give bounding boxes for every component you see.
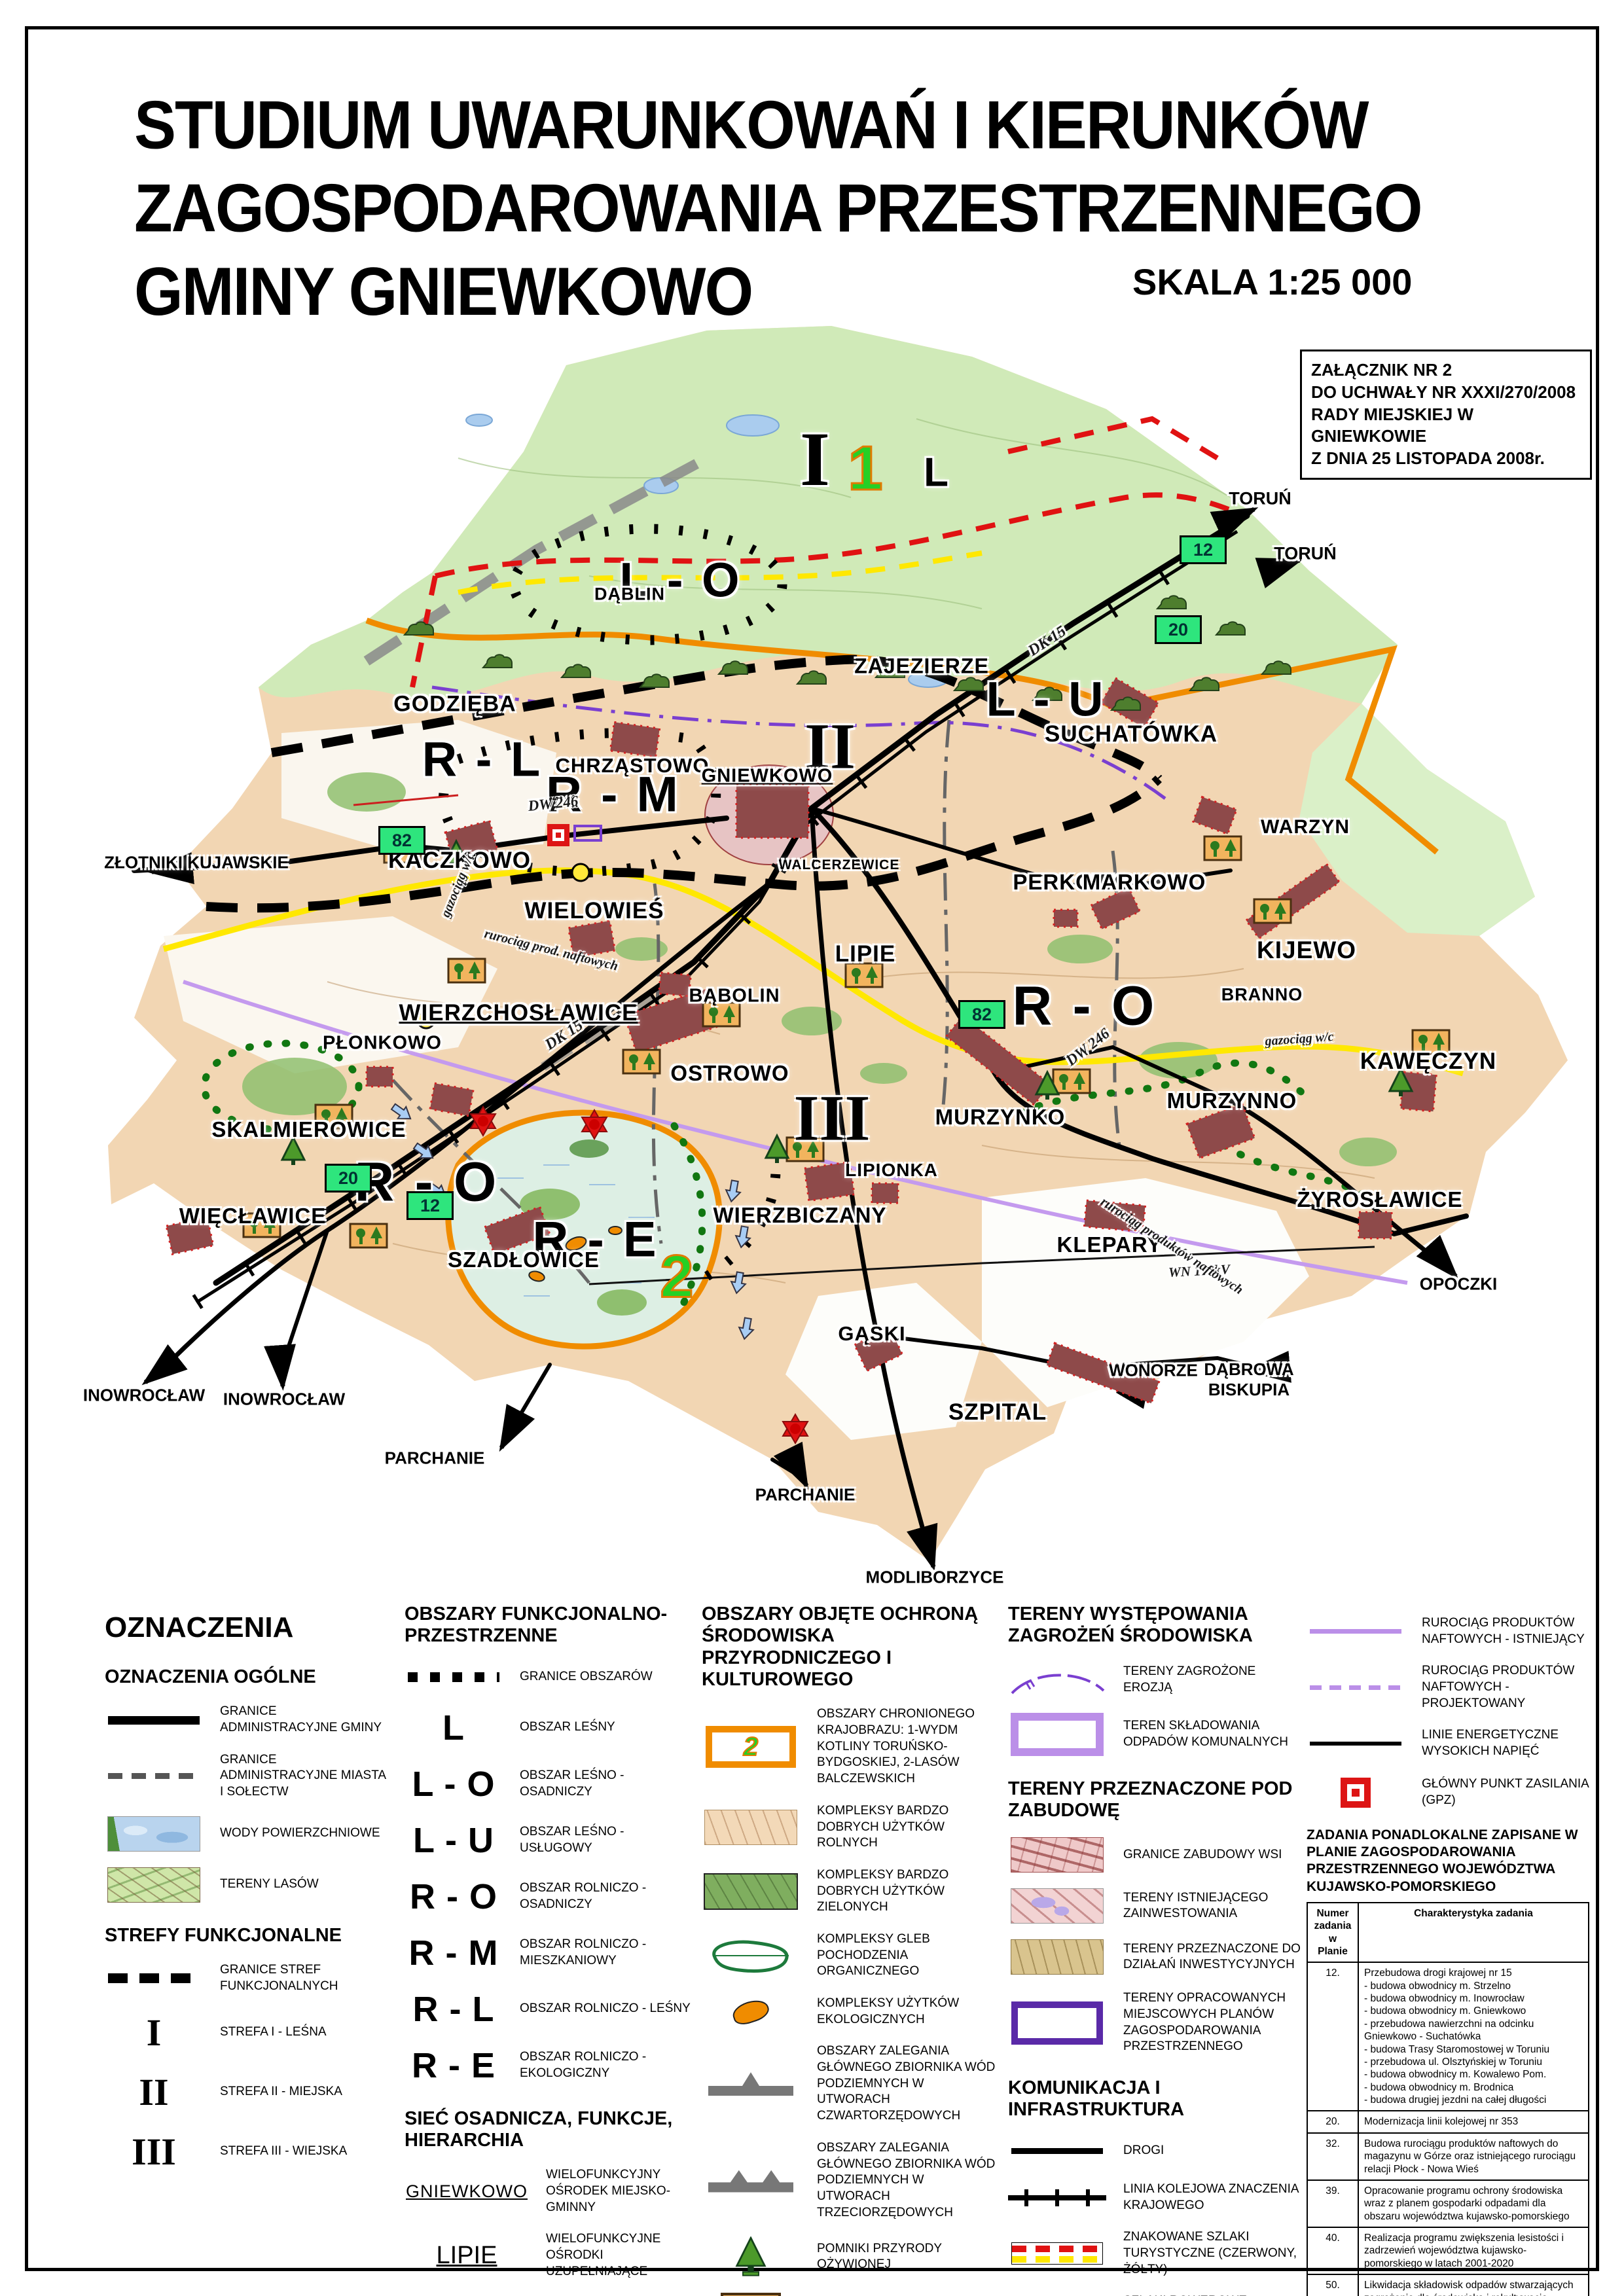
legend-heading-obszary: OBSZARY FUNKCJONALNO-PRZESTRZENNE	[405, 1604, 691, 1647]
legend-item: GRANICE ADMINISTRACYJNE GMINY	[105, 1704, 386, 1736]
legend-item: ZABYTKOWE PARKI WIEJSKIE I PODWORSKIE	[702, 2293, 998, 2296]
legend-swatch-trail	[1008, 2239, 1106, 2268]
legend-swatch-dash-black	[105, 1964, 203, 1993]
legend-item: DROGI	[1008, 2137, 1301, 2166]
legend-item-label: DROGI	[1123, 2143, 1301, 2159]
legend-item-label: WIELOFUNKCYJNY OŚRODEK MIEJSKO-GMINNY	[546, 2167, 691, 2215]
legend-swatch-img-tan	[1008, 1939, 1106, 1975]
legend-column-infrastruktura: RUROCIĄG PRODUKTÓW NAFTOWYCH - ISTNIEJĄC…	[1307, 1600, 1589, 2296]
legend-col2-items: GRANICE OBSZARÓWLOBSZAR LEŚNYL - OOBSZAR…	[405, 1663, 691, 2086]
protected-landscape-number: 2	[744, 1732, 758, 1762]
legend-zone-code: R - O	[405, 1876, 503, 1917]
legend-item: L - UOBSZAR LEŚNO - USŁUGOWY	[405, 1820, 691, 1861]
legend-swatch-purple-solid	[1307, 1617, 1405, 1646]
legend-swatch-gpz	[1307, 1776, 1405, 1810]
legend-item-label: WODY POWIERZCHNIOWE	[220, 1825, 386, 1842]
legend-swatch-eco-blob	[702, 1998, 800, 2026]
legend-item: IIISTREFA III - WIEJSKA	[105, 2130, 386, 2174]
legend-item-label: GRANICE ADMINISTRACYJNE GMINY	[220, 1704, 386, 1736]
zadania-row-number: 50.	[1307, 2274, 1358, 2296]
legend-zone-code: L - U	[405, 1820, 503, 1861]
zadania-row-text: Przebudowa drogi krajowej nr 15 - budowa…	[1358, 1962, 1589, 2111]
legend-item: IISTREFA II - MIEJSKA	[105, 2070, 386, 2114]
legend-item-label: RUROCIĄG PRODUKTÓW NAFTOWYCH - ISTNIEJĄC…	[1422, 1615, 1589, 1647]
zadania-row: 20.Modernizacja linii kolejowej nr 353	[1307, 2111, 1589, 2132]
zadania-row-number: 40.	[1307, 2227, 1358, 2274]
legend-item: RUROCIĄG PRODUKTÓW NAFTOWYCH - PROJEKTOW…	[1307, 1663, 1589, 1712]
legend-item: GRANICE ZABUDOWY WSI	[1008, 1837, 1301, 1873]
settlement-name: LIPIE	[437, 2242, 497, 2269]
legend-zone-code: R - M	[405, 1933, 503, 1973]
legend-col1-body: OZNACZENIA OGÓLNEGRANICE ADMINISTRACYJNE…	[105, 1666, 386, 2174]
legend-item-label: OBSZARY CHRONIONEGO KRAJOBRAZU: 1-WYDM K…	[817, 1706, 998, 1787]
legend-subheading: OZNACZENIA OGÓLNE	[105, 1666, 386, 1688]
legend-item: TERENY LASÓW	[105, 1867, 386, 1903]
legend-heading-ochrona: OBSZARY OBJĘTE OCHRONĄ ŚRODOWISKA PRZYRO…	[702, 1604, 998, 1691]
legend-item: WODY POWIERZCHNIOWE	[105, 1816, 386, 1852]
legend-item: R - OOBSZAR ROLNICZO - OSADNICZY	[405, 1876, 691, 1917]
legend-item: GRANICE STREF FUNKCJONALNYCH	[105, 1962, 386, 1994]
legend-item-label: STREFA III - WIEJSKA	[220, 2144, 386, 2160]
zadania-row-number: 12.	[1307, 1962, 1358, 2111]
zadania-table-grid: Numer zadania w PlanieCharakterystyka za…	[1307, 1902, 1589, 2296]
legend-item: TEREN SKŁADOWANIA ODPADÓW KOMUNALNYCH	[1008, 1713, 1301, 1756]
legend-item-label: OBSZAR ROLNICZO - MIESZKANIOWY	[520, 1937, 691, 1969]
legend-item-label: GRANICE ZABUDOWY WSI	[1123, 1847, 1301, 1863]
zadania-row: 50.Likwidacja składowisk odpadów stwarza…	[1307, 2274, 1589, 2296]
zadania-col-desc: Charakterystyka zadania	[1358, 1903, 1589, 1963]
legend-roman-numeral: III	[105, 2130, 203, 2174]
legend-col2-settlements: GNIEWKOWOWIELOFUNKCYJNY OŚRODEK MIEJSKO-…	[405, 2167, 691, 2296]
legend-subheading: TERENY PRZEZNACZONE POD ZABUDOWĘ	[1008, 1778, 1301, 1822]
legend-item-label: KOMPLEKSY GLEB POCHODZENIA ORGANICZNEGO	[817, 1931, 998, 1980]
legend-swatch-frame-orange: 2	[702, 1726, 800, 1768]
legend-item-label: TEREN SKŁADOWANIA ODPADÓW KOMUNALNYCH	[1123, 1718, 1301, 1750]
legend-swatch-black-line	[1307, 1729, 1405, 1758]
legend-item-label: OBSZAR ROLNICZO - EKOLOGICZNY	[520, 2049, 691, 2081]
legend-item-label: OBSZAR LEŚNY	[520, 1719, 691, 1736]
legend-swatch-line-dash-gray	[105, 1762, 203, 1791]
annexe-box: ZAŁĄCZNIK NR 2 DO UCHWAŁY NR XXXI/270/20…	[1300, 350, 1592, 480]
legend-title: OZNACZENIA	[105, 1611, 386, 1644]
legend-item: ZNAKOWANE SZLAKI TURYSTYCZNE (CZERWONY, …	[1008, 2229, 1301, 2278]
legend-column-obszary: OBSZARY FUNKCJONALNO-PRZESTRZENNE GRANIC…	[405, 1600, 691, 2296]
legend-item: GRANICE OBSZARÓW	[405, 1663, 691, 1692]
legend-heading-siec: SIEĆ OSADNICZA, FUNKCJE, HIERARCHIA	[405, 2108, 691, 2152]
legend-roman-numeral: I	[105, 2011, 203, 2054]
legend-swatch-img-green	[702, 1873, 800, 1910]
legend-swatch-line-thick	[105, 1706, 203, 1734]
legend-item: R - LOBSZAR ROLNICZO - LEŚNY	[405, 1989, 691, 2030]
legend-zone-code: R - L	[405, 1989, 503, 2030]
legend-col5-items: RUROCIĄG PRODUKTÓW NAFTOWYCH - ISTNIEJĄC…	[1307, 1615, 1589, 1810]
legend-item: RUROCIĄG PRODUKTÓW NAFTOWYCH - ISTNIEJĄC…	[1307, 1615, 1589, 1647]
legend-item-label: TERENY ZAGROŻONE EROZJĄ	[1123, 1664, 1301, 1696]
legend-swatch-purple-arc	[1008, 1663, 1106, 1697]
legend-zone-code: L	[405, 1708, 503, 1748]
annexe-line2: DO UCHWAŁY NR XXXI/270/2008	[1311, 382, 1581, 404]
zadania-row-text: Realizacja programu zwiększenia lesistoś…	[1358, 2227, 1589, 2274]
legend-item: POMNIKI PRZYRODY OŻYWIONEJ	[702, 2236, 998, 2277]
zadania-row-text: Modernizacja linii kolejowej nr 353	[1358, 2111, 1589, 2132]
legend-item: KOMPLEKSY GLEB POCHODZENIA ORGANICZNEGO	[702, 1931, 998, 1980]
zadania-row-text: Likwidacja składowisk odpadów stwarzając…	[1358, 2274, 1589, 2296]
legend-item-label: SZLAKI ROWEROWE (PONADLOKALNY, LOKALNY)	[1123, 2293, 1301, 2296]
legend-item: R - MOBSZAR ROLNICZO - MIESZKANIOWY	[405, 1933, 691, 1973]
legend-swatch-img-agri	[702, 1810, 800, 1845]
zadania-row-number: 20.	[1307, 2111, 1358, 2132]
legend-swatch-img-forest	[105, 1867, 203, 1903]
legend-settlement-item: GNIEWKOWOWIELOFUNKCYJNY OŚRODEK MIEJSKO-…	[405, 2167, 691, 2215]
legend-zone-code: R - E	[405, 2045, 503, 2086]
zadania-row-number: 32.	[1307, 2133, 1358, 2180]
zadania-table: Numer zadania w PlanieCharakterystyka za…	[1307, 1902, 1589, 2296]
legend-item: R - EOBSZAR ROLNICZO - EKOLOGICZNY	[405, 2045, 691, 2086]
legend-swatch-purple-dash	[1307, 1673, 1405, 1702]
legend-item-label: TERENY LASÓW	[220, 1876, 386, 1893]
legend-swatch-tree	[702, 2236, 800, 2277]
legend-settlement-item: LIPIEWIELOFUNKCYJNE OŚRODKI UZUPEŁNIAJĄC…	[405, 2231, 691, 2280]
legend-subheading: KOMUNIKACJA I INFRASTRUKTURA	[1008, 2077, 1301, 2121]
legend-item-label: ZNAKOWANE SZLAKI TURYSTYCZNE (CZERWONY, …	[1123, 2229, 1301, 2278]
legend-column-zagrozenia: TERENY WYSTĘPOWANIA ZAGROŻEŃ ŚRODOWISKAT…	[1008, 1600, 1301, 2296]
legend-item: 2OBSZARY CHRONIONEGO KRAJOBRAZU: 1-WYDM …	[702, 1706, 998, 1787]
legend-item-label: KOMPLEKSY BARDZO DOBRYCH UŻYTKÓW ZIELONY…	[817, 1867, 998, 1916]
legend-item-label: GRANICE OBSZARÓW	[520, 1669, 691, 1685]
legend-item-label: OBSZAR ROLNICZO - OSADNICZY	[520, 1880, 691, 1912]
legend-swatch-img-pink2	[1008, 1888, 1106, 1924]
legend-swatch-park	[702, 2293, 800, 2296]
legend-item-label: GŁÓWNY PUNKT ZASILANIA (GPZ)	[1422, 1776, 1589, 1808]
legend-item: LINIE ENERGETYCZNE WYSOKICH NAPIĘĆ	[1307, 1727, 1589, 1759]
legend-item-label: TERENY OPRACOWANYCH MIEJSCOWYCH PLANÓW Z…	[1123, 1990, 1301, 2055]
legend-item: KOMPLEKSY UŻYTKÓW EKOLOGICZNYCH	[702, 1996, 998, 2028]
legend-item-label: WIELOFUNKCYJNE OŚRODKI UZUPEŁNIAJĄCE	[546, 2231, 691, 2280]
legend-item: ISTREFA I - LEŚNA	[105, 2011, 386, 2054]
zadania-row: 32.Budowa rurociągu produktów naftowych …	[1307, 2133, 1589, 2180]
legend-item: GŁÓWNY PUNKT ZASILANIA (GPZ)	[1307, 1776, 1589, 1810]
legend-item-label: LINIE ENERGETYCZNE WYSOKICH NAPIĘĆ	[1422, 1727, 1589, 1759]
legend-item: LOBSZAR LEŚNY	[405, 1708, 691, 1748]
annexe-line4: Z DNIA 25 LISTOPADA 2008r.	[1311, 448, 1581, 470]
legend-item: GRANICE ADMINISTRACYJNE MIASTA I SOŁECTW	[105, 1752, 386, 1801]
zadania-row: 40.Realizacja programu zwiększenia lesis…	[1307, 2227, 1589, 2274]
legend-item-label: OBSZAR LEŚNO - OSADNICZY	[520, 1768, 691, 1800]
zadania-row-text: Budowa rurociągu produktów naftowych do …	[1358, 2133, 1589, 2180]
zadania-row: 12.Przebudowa drogi krajowej nr 15 - bud…	[1307, 1962, 1589, 2111]
legend-item: SZLAKI ROWEROWE (PONADLOKALNY, LOKALNY)	[1008, 2293, 1301, 2296]
legend-item-label: GRANICE STREF FUNKCJONALNYCH	[220, 1962, 386, 1994]
legend-item-label: RUROCIĄG PRODUKTÓW NAFTOWYCH - PROJEKTOW…	[1422, 1663, 1589, 1712]
legend-zone-code: L - O	[405, 1764, 503, 1804]
legend-item-label: STREFA II - MIEJSKA	[220, 2084, 386, 2100]
zadania-row: 39.Opracowanie programu ochrony środowis…	[1307, 2180, 1589, 2227]
legend-swatch-frame-violet	[1008, 1713, 1106, 1756]
annexe-line3: RADY MIEJSKIEJ W GNIEWKOWIE	[1311, 404, 1581, 448]
zadania-col-num: Numer zadania w Planie	[1307, 1903, 1358, 1963]
zadania-row-text: Opracowanie programu ochrony środowiska …	[1358, 2180, 1589, 2227]
zadania-heading: ZADANIA PONADLOKALNE ZAPISANE W PLANIE Z…	[1307, 1827, 1589, 1895]
legend-item-label: KOMPLEKSY BARDZO DOBRYCH UŻYTKÓW ROLNYCH	[817, 1803, 998, 1852]
legend-swatch-dots-black	[405, 1663, 503, 1692]
legend-item-label: TERENY PRZEZNACZONE DO DZIAŁAŃ INWESTYCY…	[1123, 1941, 1301, 1973]
legend-item-label: KOMPLEKSY UŻYTKÓW EKOLOGICZNYCH	[817, 1996, 998, 2028]
legend-item: L - OOBSZAR LEŚNO - OSADNICZY	[405, 1764, 691, 1804]
legend-swatch-img-water	[105, 1816, 203, 1852]
legend-swatch-aquifer2	[702, 2166, 800, 2195]
legend-item-label: OBSZAR ROLNICZO - LEŚNY	[520, 2001, 691, 2017]
legend-swatch-rail	[1008, 2183, 1106, 2212]
annexe-line1: ZAŁĄCZNIK NR 2	[1311, 359, 1581, 382]
legend-roman-numeral: II	[105, 2070, 203, 2114]
legend-item-label: TERENY ISTNIEJĄCEGO ZAINWESTOWANIA	[1123, 1890, 1301, 1922]
legend-item: OBSZARY ZALEGANIA GŁÓWNEGO ZBIORNIKA WÓD…	[702, 2140, 998, 2221]
legend-item: OBSZARY ZALEGANIA GŁÓWNEGO ZBIORNIKA WÓD…	[702, 2043, 998, 2124]
legend-item-label: POMNIKI PRZYRODY OŻYWIONEJ	[817, 2241, 998, 2273]
legend-item: TERENY PRZEZNACZONE DO DZIAŁAŃ INWESTYCY…	[1008, 1939, 1301, 1975]
legend-item-label: OBSZARY ZALEGANIA GŁÓWNEGO ZBIORNIKA WÓD…	[817, 2043, 998, 2124]
zadania-row-number: 39.	[1307, 2180, 1358, 2227]
legend-item: LINIA KOLEJOWA ZNACZENIA KRAJOWEGO	[1008, 2181, 1301, 2214]
legend-item: TERENY OPRACOWANYCH MIEJSCOWYCH PLANÓW Z…	[1008, 1990, 1301, 2055]
legend-item: TERENY ZAGROŻONE EROZJĄ	[1008, 1663, 1301, 1697]
legend-item: KOMPLEKSY BARDZO DOBRYCH UŻYTKÓW ZIELONY…	[702, 1867, 998, 1916]
plan-sheet: STUDIUM UWARUNKOWAŃ I KIERUNKÓW ZAGOSPOD…	[0, 0, 1624, 2296]
settlement-name-sample: GNIEWKOWO	[405, 2181, 529, 2202]
settlement-name-sample: LIPIE	[405, 2242, 529, 2270]
legend-col3-items: 2OBSZARY CHRONIONEGO KRAJOBRAZU: 1-WYDM …	[702, 1706, 998, 2296]
settlement-name: GNIEWKOWO	[406, 2181, 528, 2201]
legend-swatch-road	[1008, 2137, 1106, 2166]
legend-item-label: LINIA KOLEJOWA ZNACZENIA KRAJOWEGO	[1123, 2181, 1301, 2214]
legend-column-oznaczenia: OZNACZENIA OZNACZENIA OGÓLNEGRANICE ADMI…	[105, 1600, 386, 2189]
legend-swatch-organic	[702, 1936, 800, 1975]
legend-subheading: STREFY FUNKCJONALNE	[105, 1925, 386, 1946]
legend-item-label: STREFA I - LEŚNA	[220, 2024, 386, 2041]
legend-col4-body: TERENY WYSTĘPOWANIA ZAGROŻEŃ ŚRODOWISKAT…	[1008, 1604, 1301, 2296]
legend-column-ochrona: OBSZARY OBJĘTE OCHRONĄ ŚRODOWISKA PRZYRO…	[702, 1600, 998, 2296]
legend-item: TERENY ISTNIEJĄCEGO ZAINWESTOWANIA	[1008, 1888, 1301, 1924]
legend-swatch-aquifer1	[702, 2070, 800, 2098]
legend-item-label: GRANICE ADMINISTRACYJNE MIASTA I SOŁECTW	[220, 1752, 386, 1801]
legend-subheading: TERENY WYSTĘPOWANIA ZAGROŻEŃ ŚRODOWISKA	[1008, 1604, 1301, 1647]
legend-item: KOMPLEKSY BARDZO DOBRYCH UŻYTKÓW ROLNYCH	[702, 1803, 998, 1852]
legend-swatch-img-pink	[1008, 1837, 1106, 1873]
legend-item-label: OBSZAR LEŚNO - USŁUGOWY	[520, 1824, 691, 1856]
legend-swatch-frame-purple	[1008, 2001, 1106, 2045]
legend-item-label: OBSZARY ZALEGANIA GŁÓWNEGO ZBIORNIKA WÓD…	[817, 2140, 998, 2221]
